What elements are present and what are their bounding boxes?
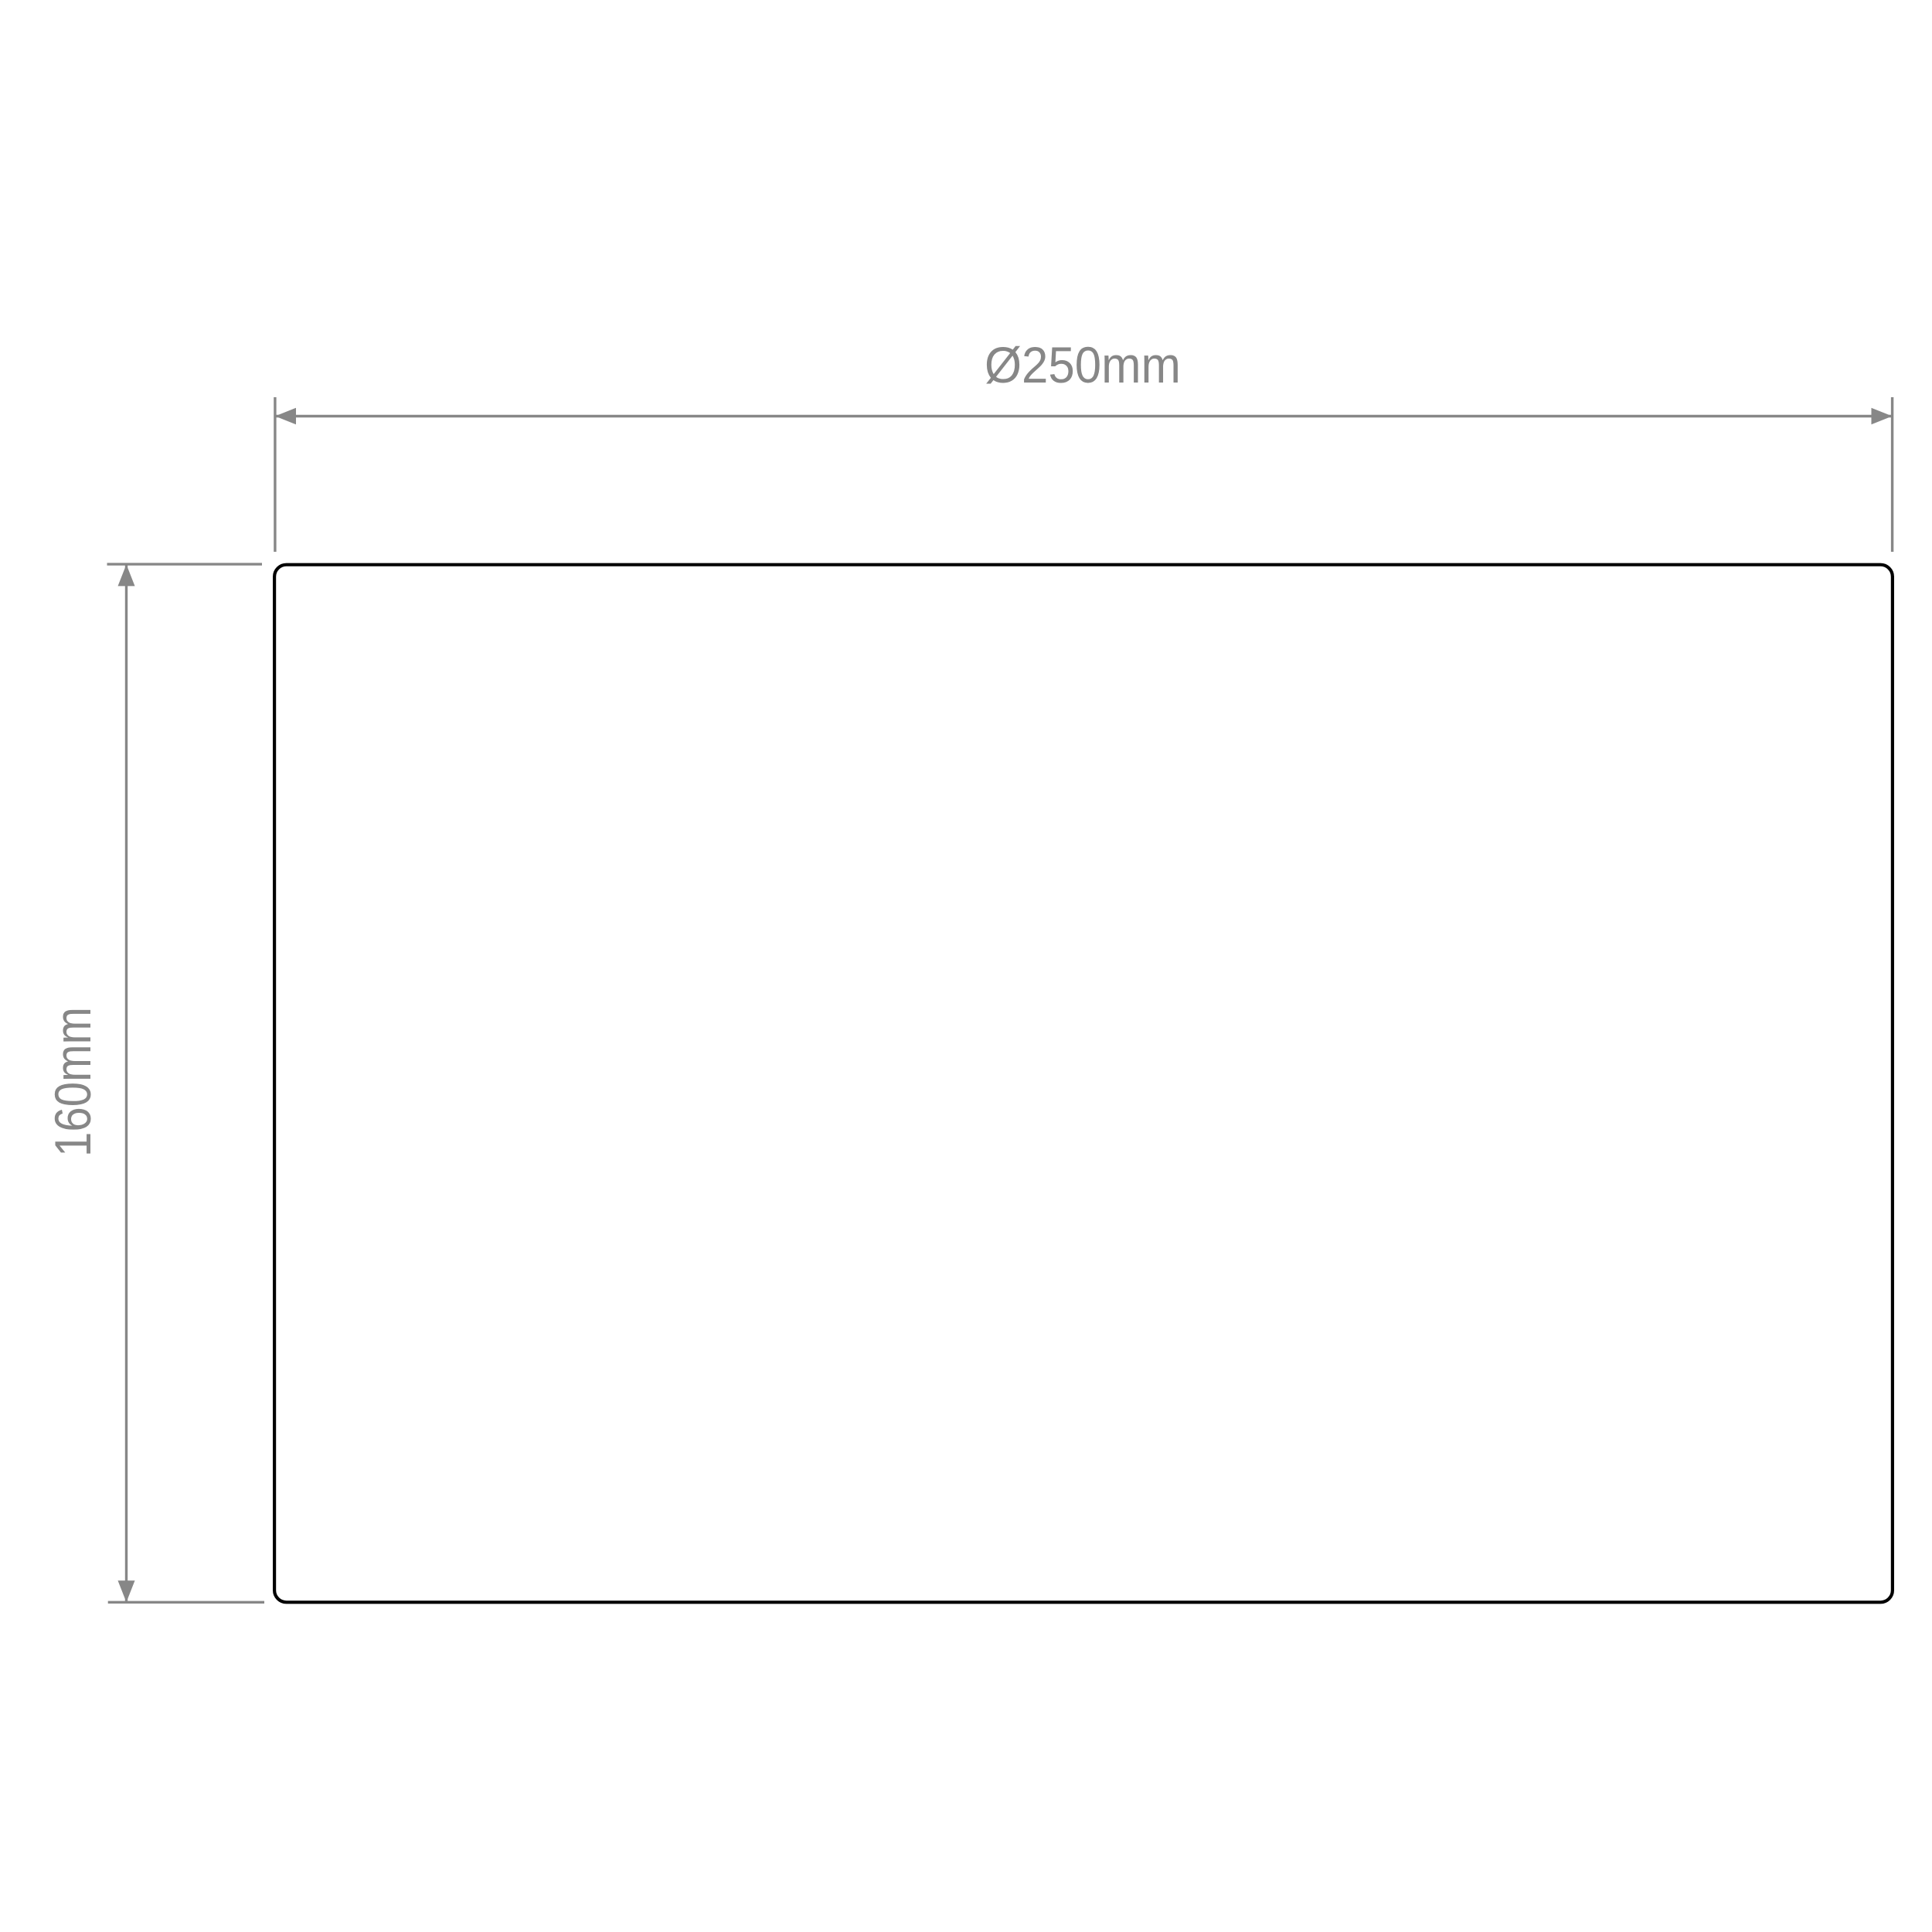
svg-text:160mm: 160mm: [44, 1007, 101, 1157]
svg-text:Ø250mm: Ø250mm: [985, 336, 1181, 393]
